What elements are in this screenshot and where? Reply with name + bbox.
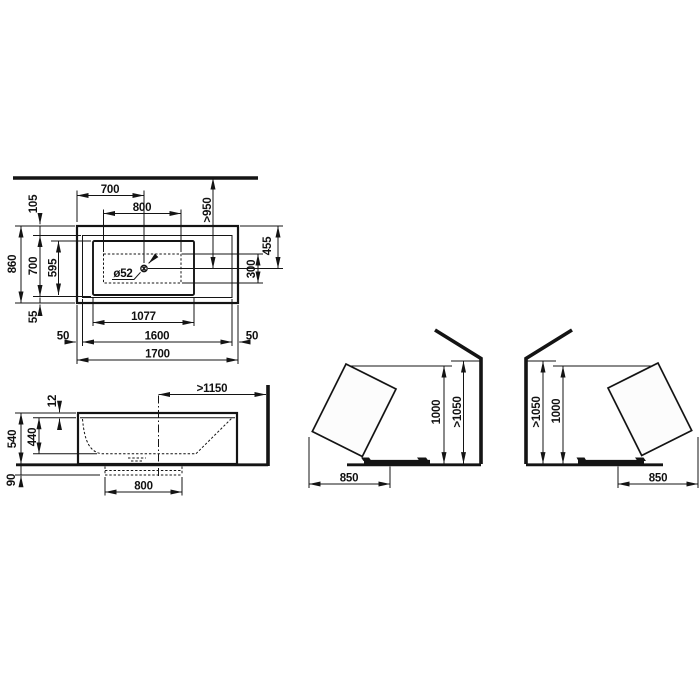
- dim-rim-right: 50: [246, 331, 258, 343]
- dim-basin-length: 1077: [131, 311, 156, 323]
- dim-rim-left: 50: [57, 331, 69, 343]
- side-view-extension-lines: [15, 413, 182, 496]
- technical-drawing-canvas: 700 800 105 860 700 595 55 50 1077 1600 …: [0, 0, 700, 700]
- top-view: 700 800 105 860 700 595 55 50 1077 1600 …: [7, 178, 283, 364]
- tub-rim-outline: [83, 236, 233, 298]
- dim-tub-height: 1000: [431, 400, 443, 425]
- basin-profile-backrest: [196, 419, 232, 454]
- dim-overall-height: 540: [7, 430, 19, 449]
- dim-rim-thickness: 12: [47, 395, 59, 407]
- side-view-dimension-lines: [21, 395, 266, 493]
- side-view: >1150 12 540 440 90 800: [6, 383, 268, 496]
- tilted-tub-outline: [608, 363, 692, 456]
- dim-wall-clearance: >1050: [452, 396, 464, 427]
- technical-drawing-page: 700 800 105 860 700 595 55 50 1077 1600 …: [0, 0, 700, 700]
- dim-rim-bottom: 55: [28, 310, 40, 323]
- dim-drain-diameter: ø52: [113, 268, 132, 280]
- dim-drain-zone-width: 300: [246, 260, 258, 279]
- dim-drain-zone-length: 800: [133, 202, 152, 214]
- basin-profile-left: [83, 419, 197, 454]
- dim-wall-to-drain: >950: [202, 197, 214, 222]
- dim-inner-width: 700: [28, 257, 40, 276]
- tilt-view-wall-left: >1050 1000 850: [526, 330, 698, 488]
- dim-left-edge-to-drain: 700: [101, 184, 120, 196]
- dim-wall-clearance: >1050: [531, 396, 543, 427]
- dim-plinth-height: 90: [6, 474, 18, 486]
- dim-plinth-length: 800: [134, 481, 153, 493]
- dim-floor-clearance: 850: [340, 473, 359, 485]
- tub-side-outline: [78, 413, 237, 464]
- dim-basin-width: 595: [48, 258, 60, 277]
- tilted-tub-outline: [312, 364, 396, 457]
- dim-inner-length: 1600: [145, 331, 170, 343]
- dim-floor-clearance: 850: [649, 473, 668, 485]
- dim-overall-width: 860: [7, 255, 19, 274]
- dim-overall-length: 1700: [145, 349, 170, 361]
- dim-top-edge-to-drain: 455: [262, 236, 274, 255]
- dim-rim-top: 105: [28, 194, 40, 213]
- dim-drain-to-wall: >1150: [197, 383, 228, 395]
- plinth-outline: [105, 467, 182, 476]
- dim-inner-depth: 440: [27, 428, 39, 447]
- tub-outer-outline: [77, 226, 238, 303]
- rail-clip-left: [361, 458, 372, 462]
- dim-tub-height: 1000: [551, 399, 563, 424]
- tilt-view-wall-right: 1000 >1050 850: [309, 330, 481, 488]
